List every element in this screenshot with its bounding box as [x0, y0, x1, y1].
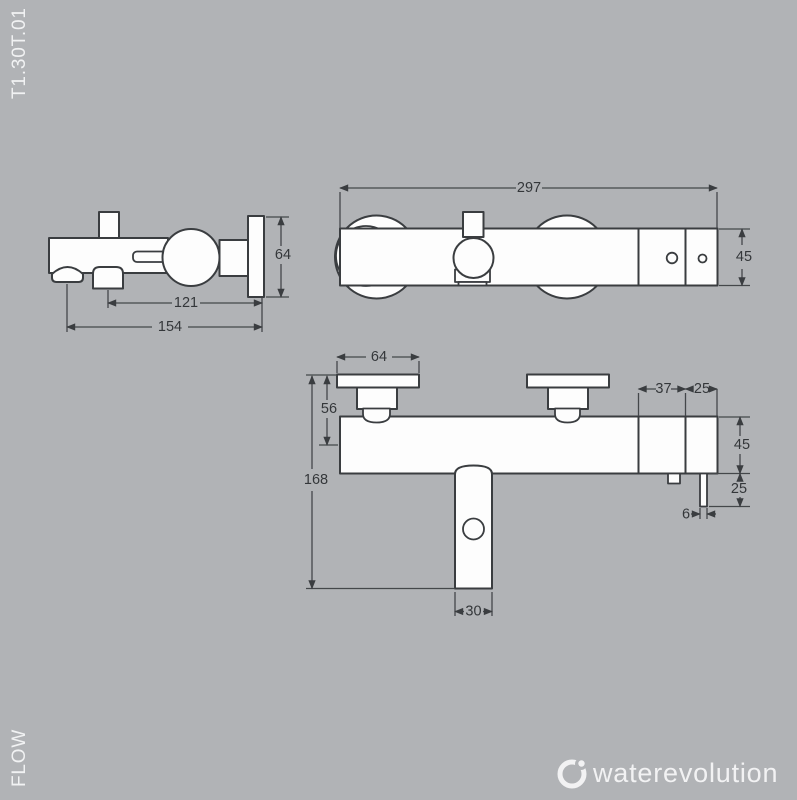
hose-nipple-front [668, 474, 680, 484]
dim-shower-outlet-to-wall: 121 [108, 290, 262, 332]
screw-hole-small [699, 255, 707, 263]
right-step-front [548, 388, 588, 410]
dim-label-37: 37 [655, 381, 671, 397]
dim-escutcheon-width: 64 [337, 349, 419, 373]
left-step-front [357, 388, 397, 410]
dim-label-64-side: 64 [275, 247, 291, 263]
dim-label-154: 154 [158, 319, 182, 335]
left-flange-front [337, 375, 419, 388]
dim-label-30: 30 [465, 604, 481, 620]
dim-label-121: 121 [174, 295, 198, 311]
dim-label-64-front: 64 [371, 349, 387, 365]
dim-flange-to-axis: 56 [306, 375, 338, 445]
right-flange-front [527, 375, 609, 388]
side-view: 121 154 64 [49, 212, 291, 335]
pin-front [700, 474, 707, 507]
front-view: 64 56 168 37 25 [304, 349, 750, 620]
diverter-knob-side [99, 212, 119, 238]
dim-pin-drop: 25 [709, 474, 750, 507]
dim-label-45-top: 45 [736, 249, 752, 265]
spout-outlet-side [52, 267, 83, 282]
brand-logo: waterevolution [556, 753, 778, 793]
dim-label-297: 297 [517, 180, 541, 196]
dim-label-45-front: 45 [734, 437, 750, 453]
handle-hole-front [463, 519, 484, 540]
mixer-body-front [340, 417, 718, 474]
dim-right-segments: 37 25 [639, 381, 718, 416]
right-step-collar-front [555, 409, 580, 423]
handle-ball-side [163, 229, 220, 286]
mixer-body-top [340, 229, 718, 286]
dim-label-56: 56 [321, 401, 337, 417]
diverter-knob-top [463, 212, 484, 237]
water-drop-ring-icon [556, 755, 590, 791]
dim-label-168: 168 [304, 472, 328, 488]
shower-outlet-side [93, 267, 123, 289]
dim-label-25b: 25 [731, 481, 747, 497]
left-step-collar-front [363, 409, 390, 423]
brand-name: waterevolution [593, 758, 778, 789]
wall-plate-side [248, 216, 264, 297]
dim-handle-width: 30 [455, 592, 492, 620]
handle-base-step-top [459, 282, 487, 286]
dim-label-25a: 25 [694, 381, 710, 397]
technical-drawing: 121 154 64 [0, 0, 797, 800]
handle-knob-top [454, 238, 494, 278]
screw-hole-large [667, 253, 678, 264]
dim-spout-to-wall: 154 [67, 284, 262, 335]
dim-body-depth: 45 [719, 229, 752, 286]
top-view: 297 45 [335, 180, 752, 299]
wall-connector-side [220, 240, 249, 276]
dim-wall-plate-height: 64 [266, 217, 291, 297]
dim-pin-width: 6 [682, 507, 716, 523]
dim-label-6: 6 [682, 507, 690, 523]
